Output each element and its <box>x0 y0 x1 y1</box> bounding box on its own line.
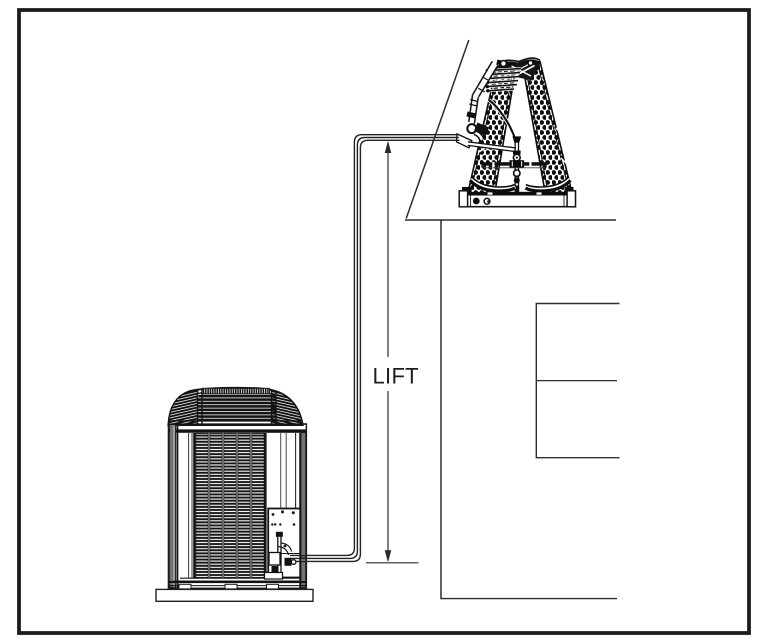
svg-text:LIFT: LIFT <box>373 364 419 389</box>
